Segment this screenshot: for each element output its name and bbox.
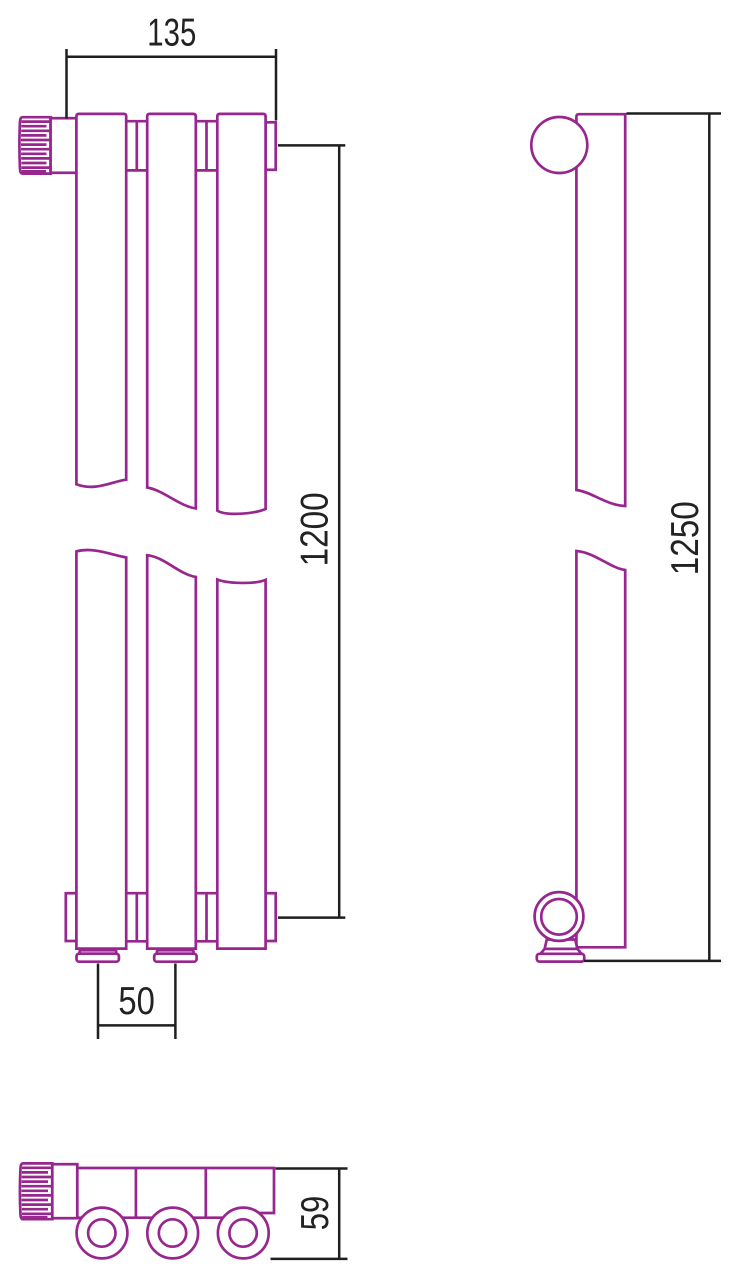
svg-text:1200: 1200 [293,492,336,566]
svg-text:50: 50 [118,980,155,1023]
svg-text:135: 135 [147,11,196,54]
svg-text:59: 59 [294,1196,337,1231]
svg-text:1250: 1250 [664,501,707,575]
